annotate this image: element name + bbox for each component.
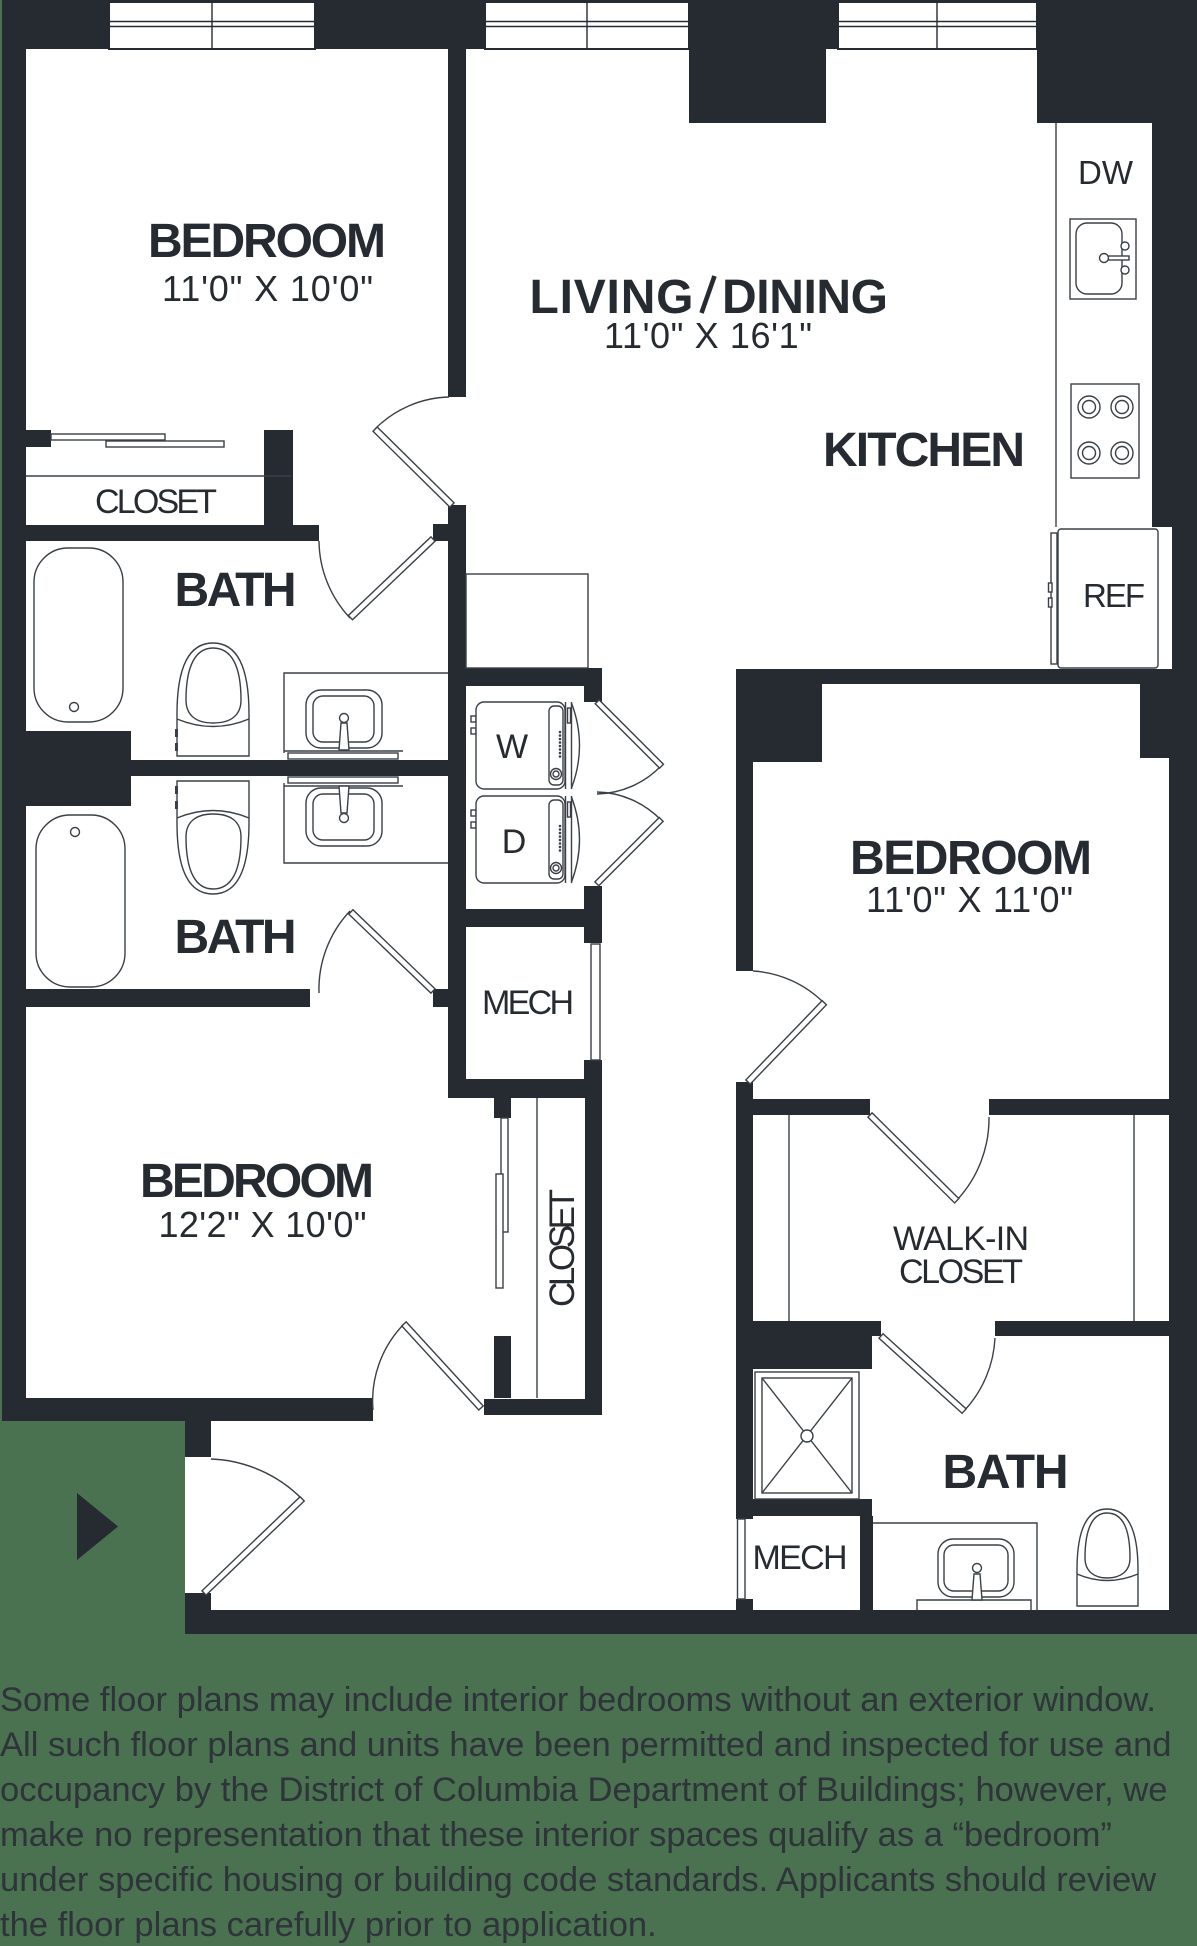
svg-text:BATH: BATH xyxy=(175,564,297,617)
svg-text:MECH: MECH xyxy=(753,1539,848,1577)
svg-text:DW: DW xyxy=(1078,154,1134,191)
svg-text:D: D xyxy=(502,823,527,861)
svg-text:REF: REF xyxy=(1083,577,1145,614)
svg-text:BEDROOM: BEDROOM xyxy=(140,1155,374,1208)
svg-text:MECH: MECH xyxy=(482,984,574,1022)
svg-text:BEDROOM: BEDROOM xyxy=(148,215,386,268)
svg-text:CLOSET: CLOSET xyxy=(543,1189,582,1307)
svg-text:KITCHEN: KITCHEN xyxy=(823,424,1025,477)
svg-text:W: W xyxy=(496,728,528,766)
svg-text:CLOSET: CLOSET xyxy=(899,1253,1023,1291)
svg-text:BATH: BATH xyxy=(175,911,297,964)
svg-text:11'0" X 10'0": 11'0" X 10'0" xyxy=(162,268,373,309)
svg-text:BEDROOM: BEDROOM xyxy=(850,832,1092,885)
svg-text:BATH: BATH xyxy=(943,1446,1069,1499)
svg-text:12'2" X 10'0": 12'2" X 10'0" xyxy=(159,1204,367,1245)
svg-text:11'0" X 11'0": 11'0" X 11'0" xyxy=(866,879,1073,920)
svg-text:CLOSET: CLOSET xyxy=(95,483,217,521)
svg-text:11'0" X 16'1": 11'0" X 16'1" xyxy=(604,315,812,356)
